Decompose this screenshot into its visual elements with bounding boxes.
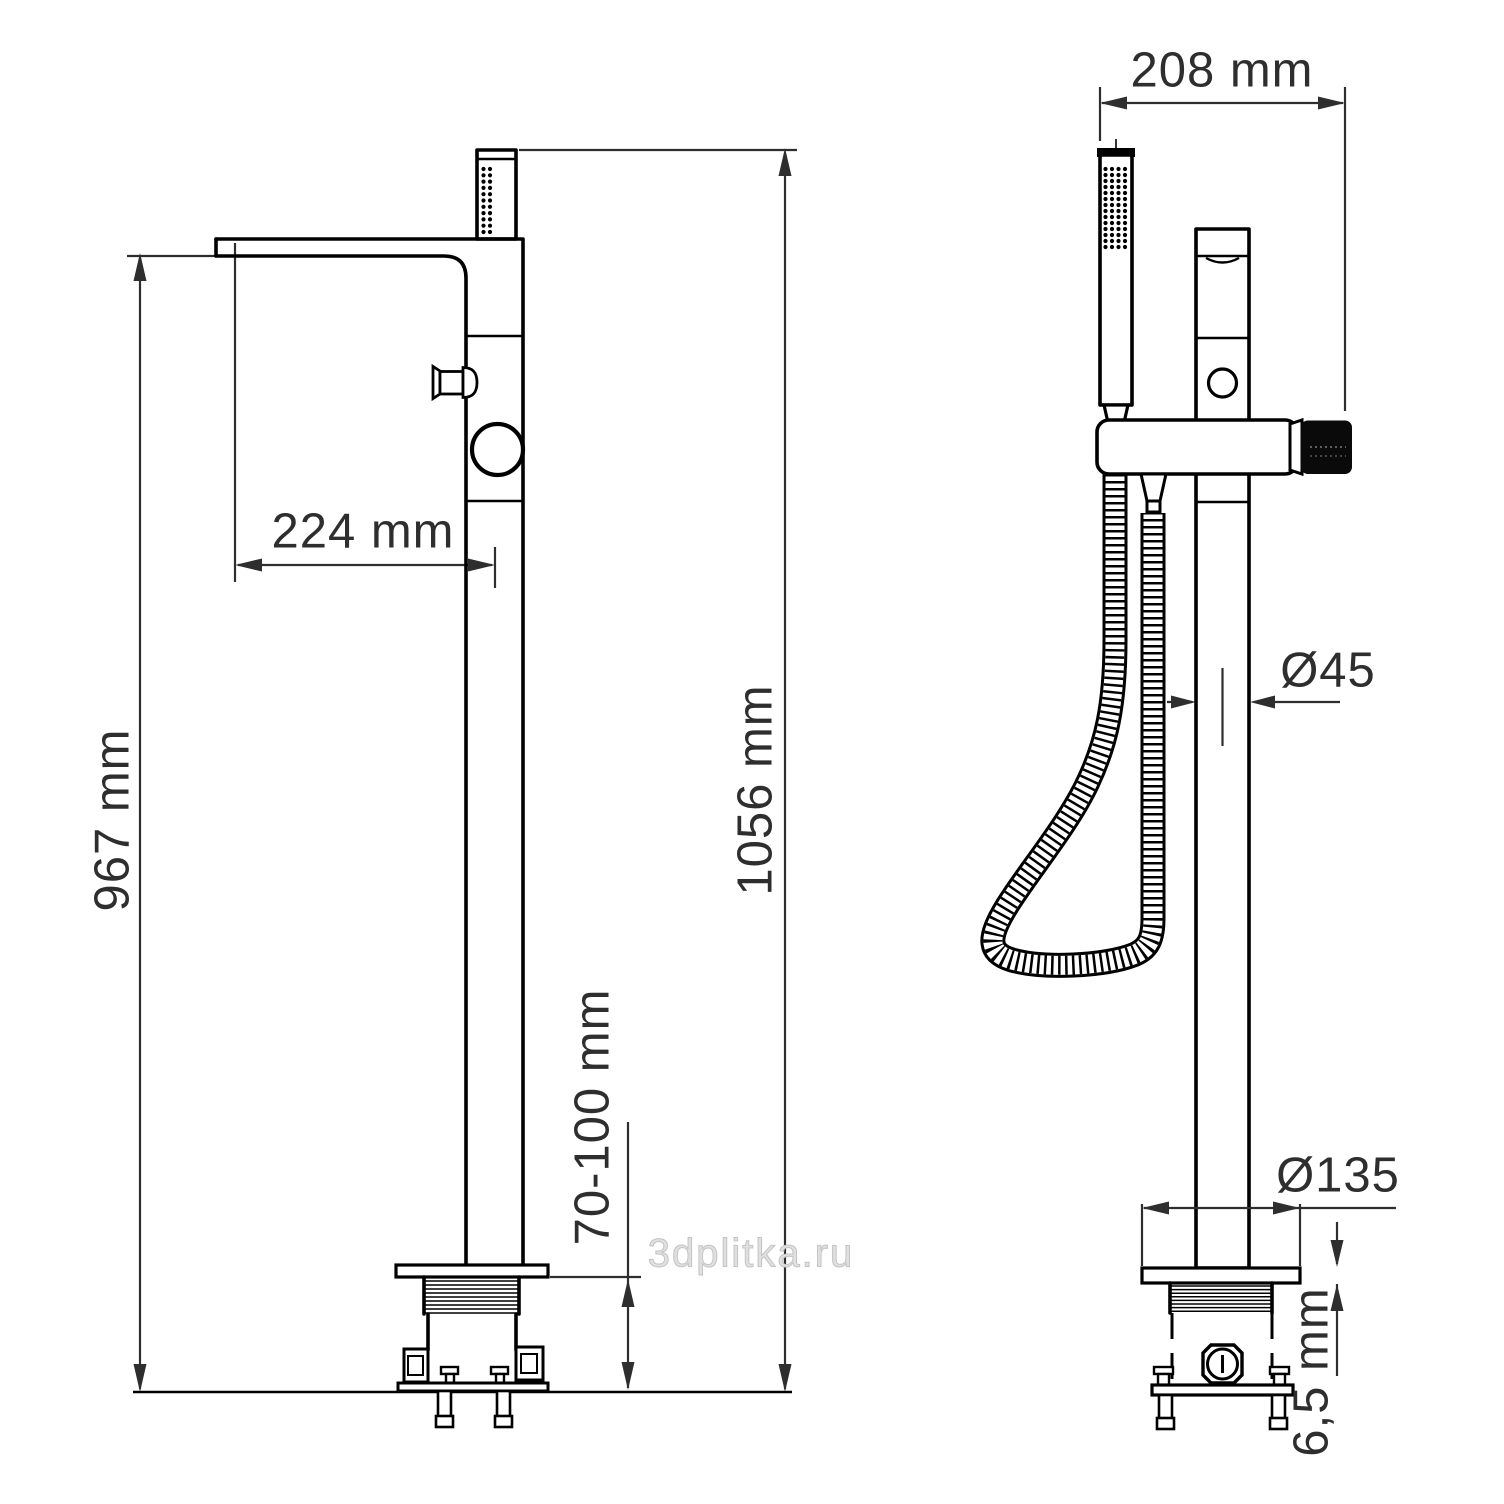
knurled-knob bbox=[1301, 421, 1352, 475]
hose-nipple bbox=[1141, 474, 1166, 501]
technical-drawing-page: 208 mm 224 mm 967 mm 1056 mm 70-100 mm Ø… bbox=[0, 0, 1504, 1504]
diverter-knob-side bbox=[433, 367, 477, 399]
threaded-section-side bbox=[424, 1277, 519, 1314]
dim-label-70-100: 70-100 mm bbox=[569, 989, 618, 1246]
shower-hose bbox=[993, 474, 1153, 965]
threaded-section-front bbox=[1170, 1283, 1272, 1313]
mounting-flange-side bbox=[398, 1383, 548, 1391]
hand-shower-side bbox=[477, 150, 516, 239]
clamp-right-side bbox=[516, 1347, 543, 1380]
hand-shower-front bbox=[1097, 139, 1135, 427]
faucet-body-side bbox=[216, 239, 523, 1265]
dim-label-967: 967 mm bbox=[89, 728, 138, 911]
column-front bbox=[1196, 229, 1249, 1268]
clamp-left-side bbox=[404, 1349, 428, 1382]
dim-label-224: 224 mm bbox=[271, 508, 454, 557]
dim-967-graphics bbox=[127, 253, 251, 1392]
mounting-flange-front bbox=[1152, 1385, 1293, 1395]
inlet-fitting-front bbox=[1203, 1345, 1242, 1383]
dim-label-1056: 1056 mm bbox=[732, 684, 781, 895]
dim-label-6-5: 6,5 mm bbox=[1288, 1287, 1337, 1456]
watermark: 3dplitka.ru bbox=[648, 1232, 855, 1277]
dim-label-d45: Ø45 bbox=[1280, 647, 1376, 696]
knob-cone bbox=[1290, 420, 1302, 474]
base-mounting-front bbox=[1142, 1268, 1300, 1429]
diverter-button-front bbox=[1209, 369, 1237, 397]
base-plate-front bbox=[1142, 1268, 1300, 1283]
dim-135-graphics bbox=[1142, 1202, 1396, 1267]
base-mounting-side bbox=[396, 1265, 548, 1427]
handle-circle-side bbox=[472, 424, 523, 475]
dim-label-208: 208 mm bbox=[1130, 47, 1313, 96]
anchor-studs-front bbox=[1157, 1395, 1287, 1429]
dim-label-d135: Ø135 bbox=[1276, 1152, 1400, 1201]
front-view bbox=[993, 87, 1396, 1429]
anchor-studs-side bbox=[436, 1391, 512, 1427]
